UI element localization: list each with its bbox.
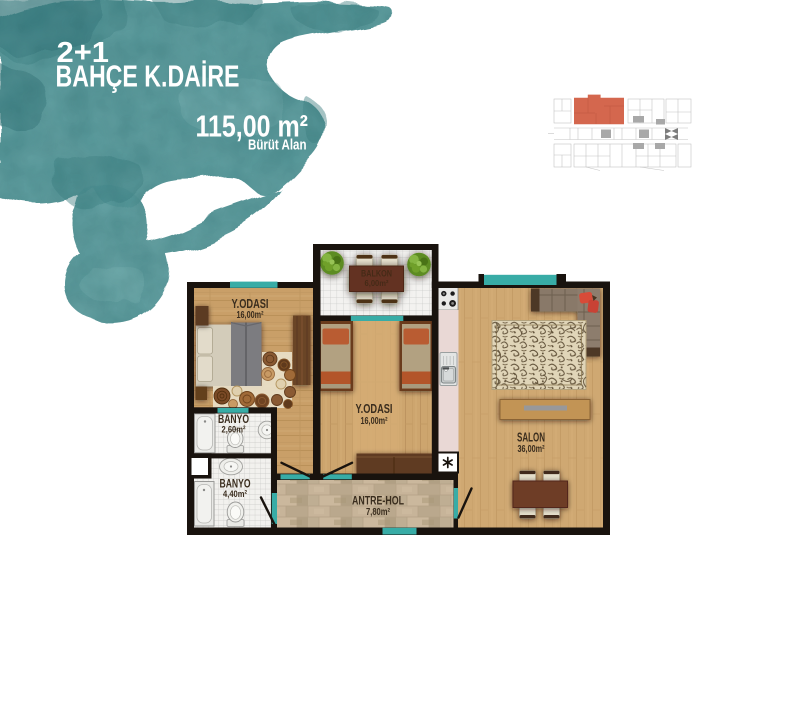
svg-text:BAHÇE K.DAİRE: BAHÇE K.DAİRE	[56, 59, 240, 94]
svg-text:6,00m²: 6,00m²	[365, 278, 389, 288]
svg-text:Y.ODASI: Y.ODASI	[356, 401, 393, 416]
svg-text:SALON: SALON	[517, 430, 545, 445]
svg-text:ANTRE-HOL: ANTRE-HOL	[352, 494, 404, 508]
svg-text:2,60m²: 2,60m²	[222, 425, 246, 436]
svg-text:36,00m²: 36,00m²	[518, 444, 545, 455]
svg-text:16,00m²: 16,00m²	[237, 310, 264, 321]
svg-text:7,80m²: 7,80m²	[366, 507, 391, 518]
svg-text:4,40m²: 4,40m²	[223, 489, 247, 500]
svg-text:Bürüt Alan: Bürüt Alan	[248, 138, 307, 154]
svg-text:16,00m²: 16,00m²	[361, 416, 388, 427]
svg-text:Y.ODASI: Y.ODASI	[232, 296, 269, 311]
